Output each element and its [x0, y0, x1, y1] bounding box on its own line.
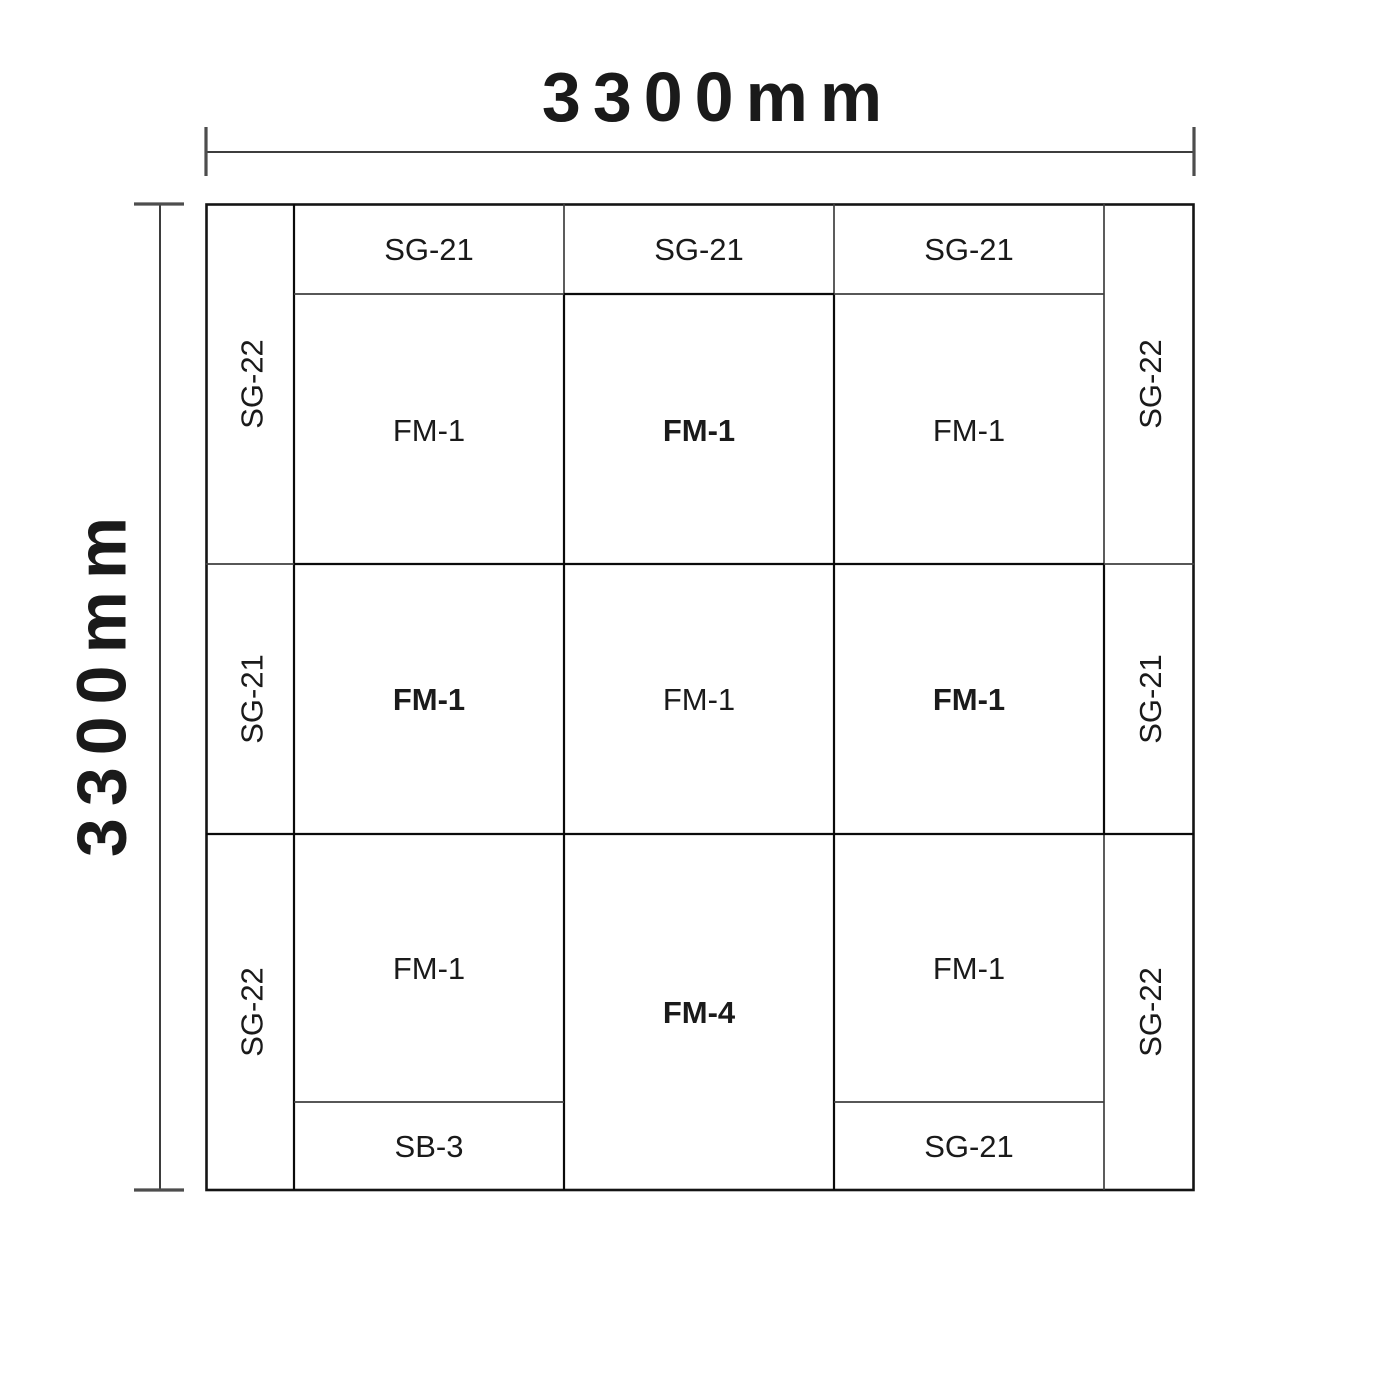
svg-text:FM-1: FM-1: [393, 413, 465, 448]
svg-text:FM-1: FM-1: [933, 682, 1005, 717]
svg-text:SG-22: SG-22: [1133, 339, 1168, 429]
svg-text:SG-21: SG-21: [924, 1129, 1014, 1164]
svg-text:SG-22: SG-22: [235, 967, 270, 1057]
svg-text:SG-21: SG-21: [235, 654, 270, 744]
svg-text:SG-21: SG-21: [1133, 654, 1168, 744]
svg-text:SG-21: SG-21: [384, 232, 474, 267]
svg-text:SG-22: SG-22: [1133, 967, 1168, 1057]
svg-text:FM-1: FM-1: [933, 951, 1005, 986]
svg-text:FM-1: FM-1: [663, 682, 735, 717]
svg-text:SG-22: SG-22: [235, 339, 270, 429]
svg-text:SG-21: SG-21: [654, 232, 744, 267]
svg-text:FM-1: FM-1: [393, 951, 465, 986]
svg-text:FM-1: FM-1: [663, 413, 735, 448]
svg-text:FM-1: FM-1: [933, 413, 1005, 448]
svg-text:3300mm: 3300mm: [542, 58, 894, 136]
svg-text:SG-21: SG-21: [924, 232, 1014, 267]
svg-text:FM-4: FM-4: [663, 995, 736, 1030]
svg-text:SB-3: SB-3: [395, 1129, 464, 1164]
svg-text:3300mm: 3300mm: [63, 505, 141, 857]
svg-text:FM-1: FM-1: [393, 682, 465, 717]
